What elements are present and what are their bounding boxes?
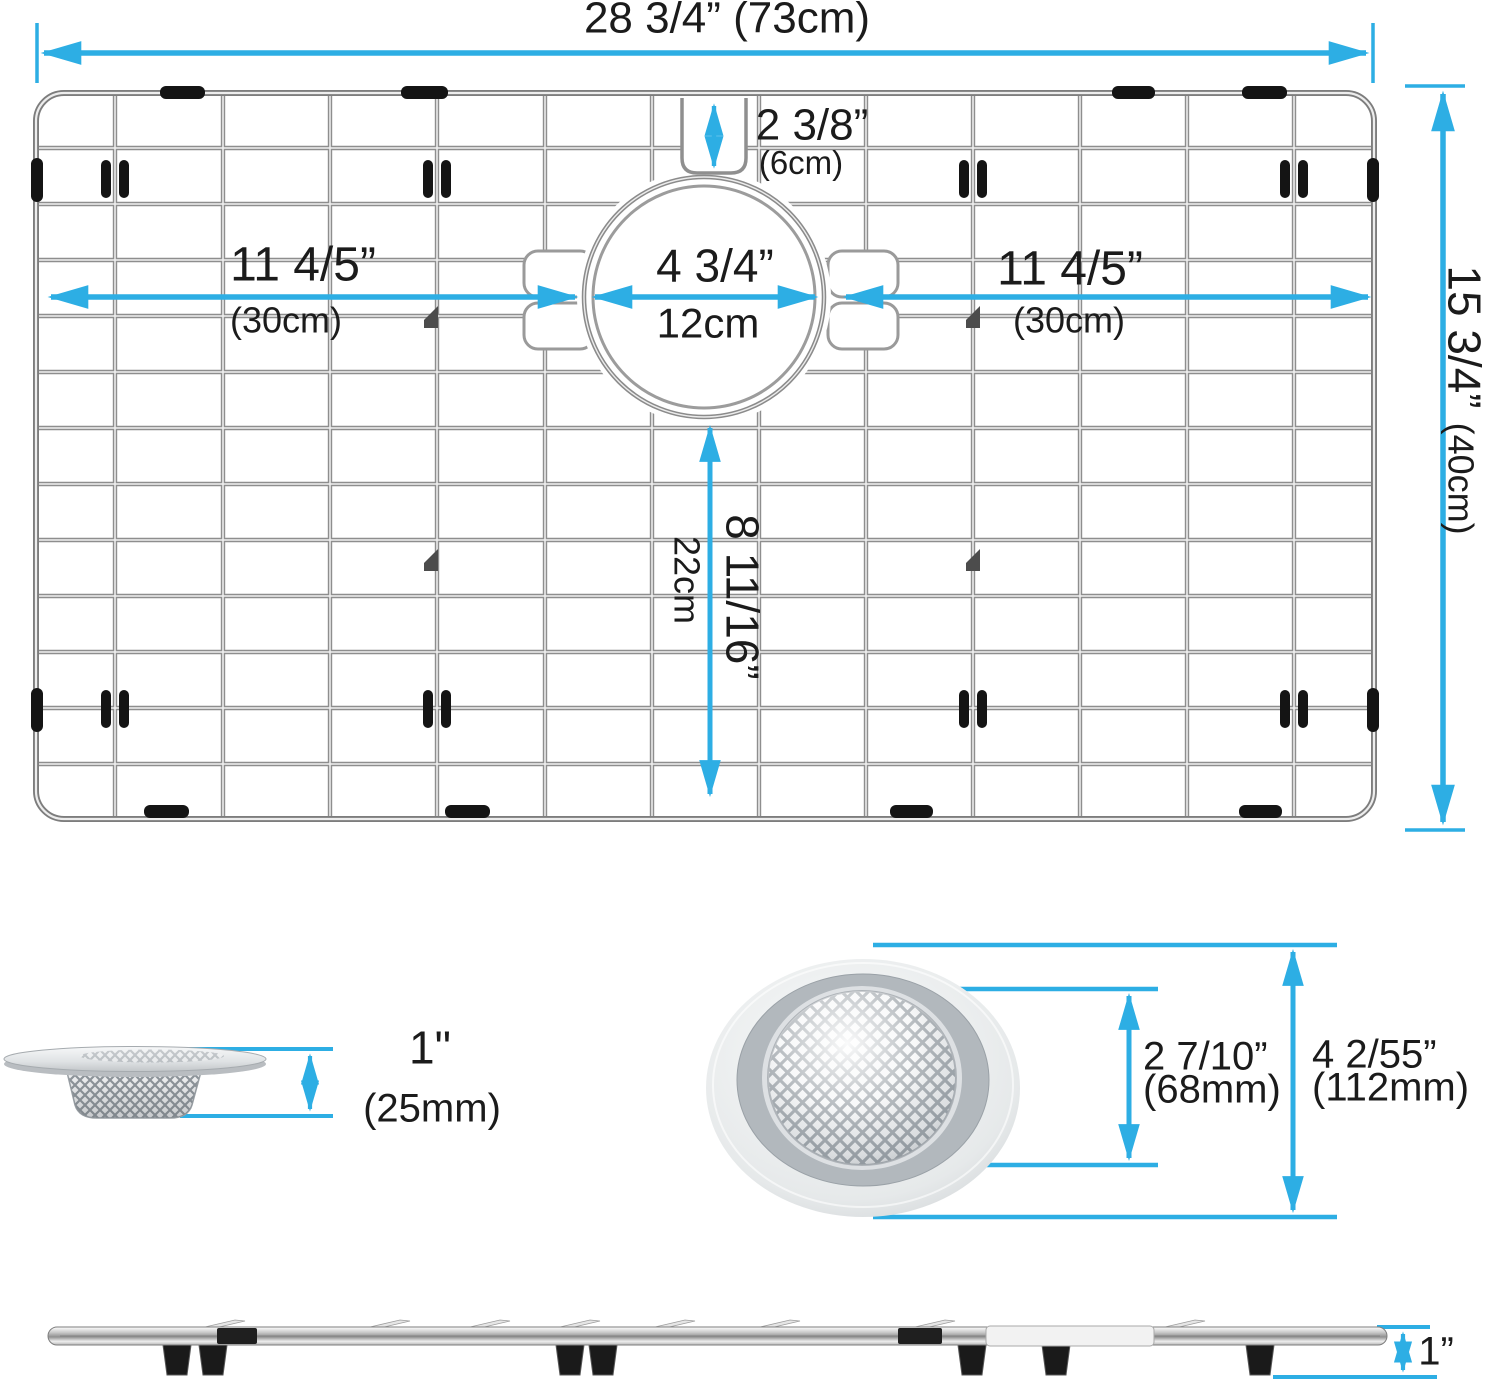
profile-sleeve-light xyxy=(986,1326,1154,1346)
right-span-inches-label: 11 4/5” xyxy=(997,246,1143,295)
strainer-side-view xyxy=(4,1047,266,1119)
profile-feet xyxy=(163,1345,1274,1375)
overall-height-inches: 15 3/4” xyxy=(1441,265,1488,408)
strainer-inner-metric-label: (68mm) xyxy=(1143,1070,1281,1111)
notch-metric-label: (6cm) xyxy=(759,146,843,180)
right-span-metric-label: (30cm) xyxy=(1013,303,1125,340)
hole-to-bottom-inches-label: 8 11/16” xyxy=(719,514,766,679)
strainer-side-metric-label: (25mm) xyxy=(363,1089,501,1130)
dimension-diagram: 28 3/4” (73cm) 2 3/8” (6cm) 11 4/5” (30c… xyxy=(0,0,1500,1384)
overall-height-metric: (40cm) xyxy=(1442,423,1479,535)
hole-metric-label: 12cm xyxy=(657,303,760,346)
hole-inches-label: 4 3/4” xyxy=(656,243,774,290)
profile-sleeve-black-1 xyxy=(217,1328,257,1344)
left-span-inches-label: 11 4/5” xyxy=(230,242,376,291)
overall-width-label: 28 3/4” (73cm) xyxy=(584,0,870,41)
strainer-side-inches-label: 1" xyxy=(409,1025,451,1072)
strainer-outer-metric-label: (112mm) xyxy=(1312,1068,1469,1109)
sink-grid xyxy=(31,86,1379,819)
diagram-canvas xyxy=(0,0,1500,1384)
grid-side-profile xyxy=(48,1320,1387,1375)
profile-sleeve-black-2 xyxy=(898,1328,942,1344)
hole-to-bottom-metric-label: 22cm xyxy=(668,536,705,624)
notch-inches-label: 2 3/8” xyxy=(756,104,869,149)
strainer-top-view xyxy=(706,959,1020,1217)
left-span-metric-label: (30cm) xyxy=(230,303,342,340)
overall-height-label: 15 3/4” (40cm) xyxy=(1441,265,1488,534)
profile-height-label: 1” xyxy=(1418,1332,1454,1373)
